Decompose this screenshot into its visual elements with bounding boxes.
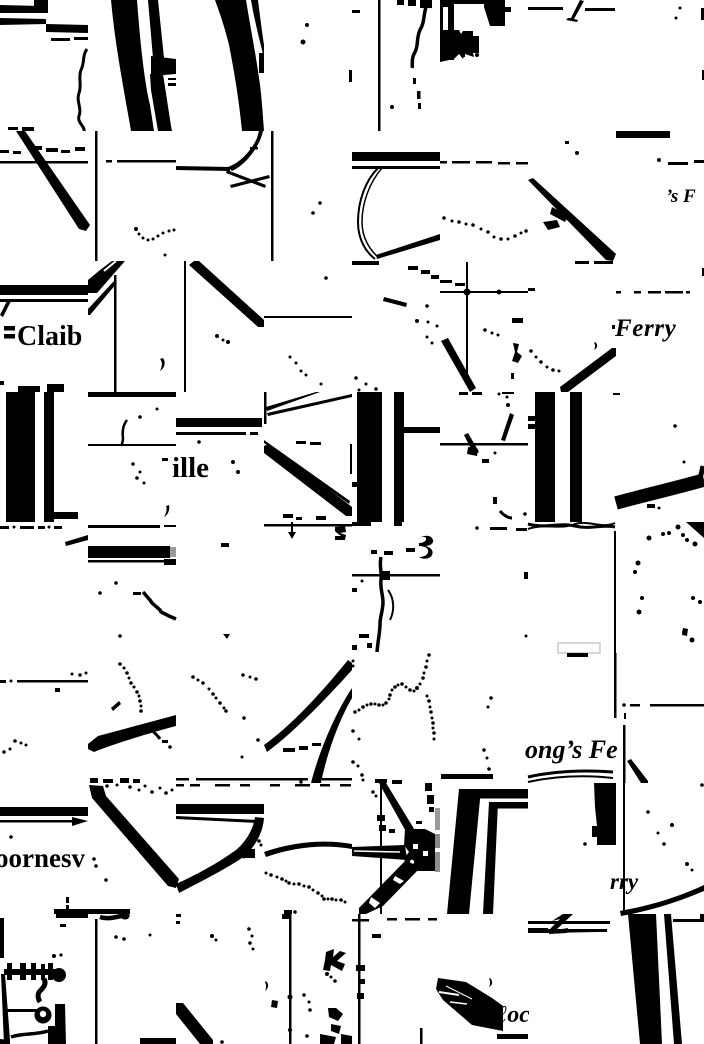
svg-text:’s F: ’s F	[666, 186, 696, 207]
svg-text:rry: rry	[610, 869, 639, 894]
svg-text:ille: ille	[172, 452, 209, 484]
svg-text:ong’s Fe: ong’s Fe	[525, 735, 618, 764]
svg-text:Ferry: Ferry	[614, 315, 677, 342]
svg-text:Claib: Claib	[17, 321, 82, 352]
svg-text:oornesv: oornesv	[0, 843, 85, 873]
svg-text:ℓoc: ℓoc	[497, 1002, 530, 1028]
